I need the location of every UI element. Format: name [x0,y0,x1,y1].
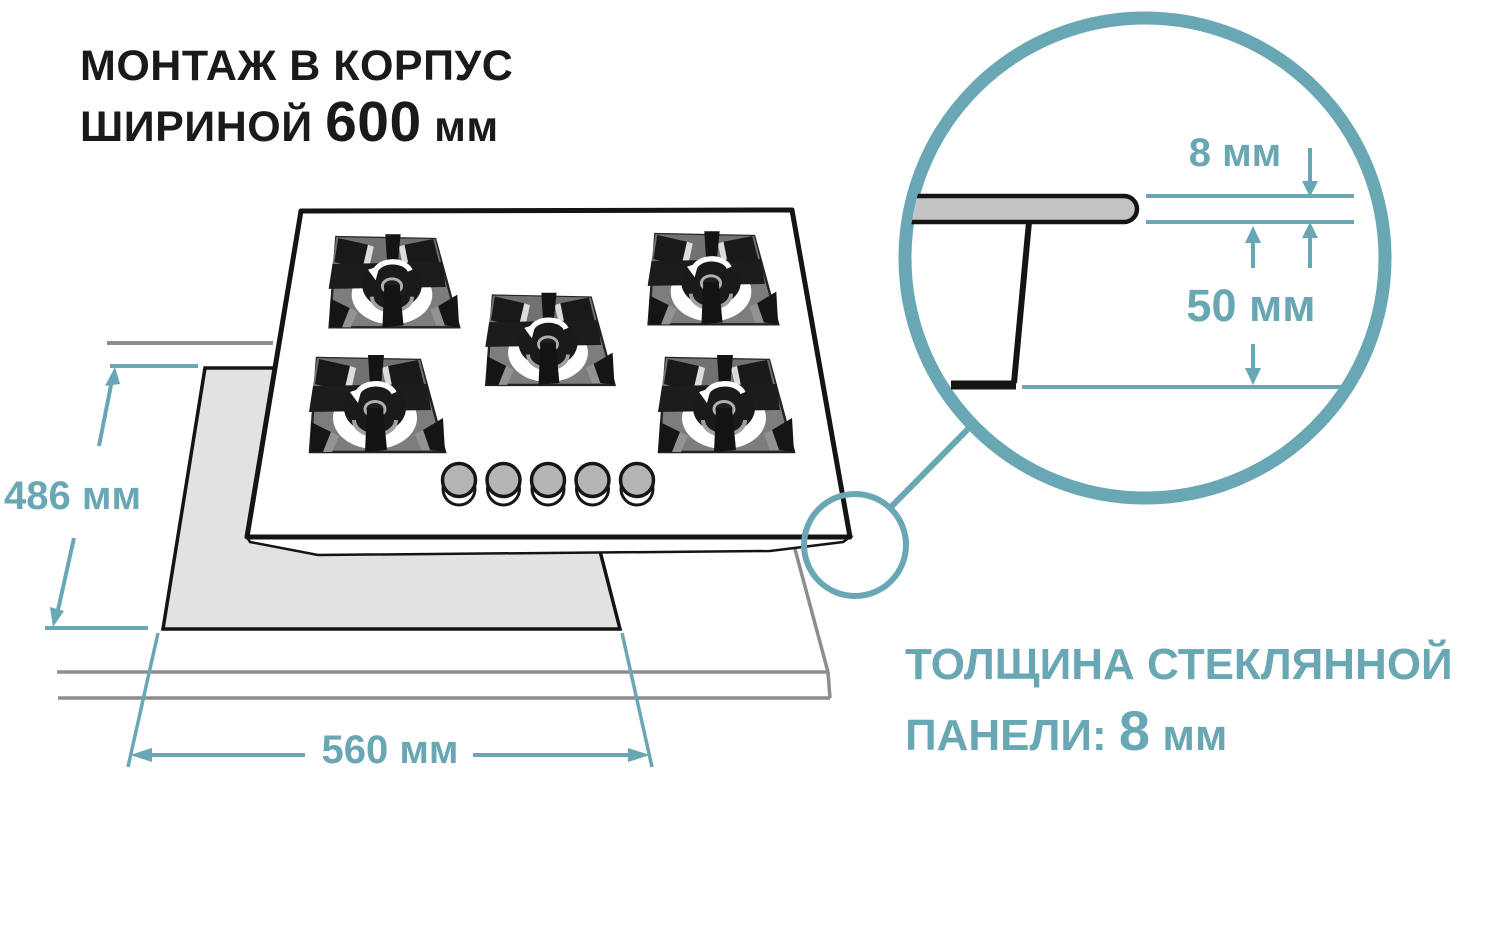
page-title-line1: МОНТАЖ В КОРПУС [80,38,513,94]
dim-486-arrow-up [105,367,120,386]
detail-lens [878,18,1385,498]
caption-line2: ПАНЕЛИ: 8 мм [905,698,1453,769]
dim-label-486: 486 мм [4,474,141,519]
detail-lens-circle [905,18,1385,498]
dim-486-lower-line [58,538,74,610]
knob-3 [532,464,565,506]
dim-label-8mm: 8 мм [1183,131,1287,176]
page-title: МОНТАЖ В КОРПУС ШИРИНОЙ 600 мм [80,38,513,155]
countertop-right-edge [792,538,828,672]
installation-diagram-page: МОНТАЖ В КОРПУС ШИРИНОЙ 600 мм 486 мм 56… [0,0,1500,929]
dim-label-50mm: 50 мм [1184,280,1318,332]
dim-486-upper-line [99,380,112,446]
callout-connector-line [890,425,972,508]
glass-cross-section [878,196,1137,222]
knob-2 [487,464,520,506]
knob-1 [443,464,476,506]
hob [247,210,850,555]
glass-thickness-caption: ТОЛЩИНА СТЕКЛЯННОЙ ПАНЕЛИ: 8 мм [905,632,1453,769]
dim-560-right-extension [622,633,652,767]
knob-4 [576,464,609,506]
dim-label-560: 560 мм [290,728,490,773]
knob-5 [621,464,654,506]
caption-line1: ТОЛЩИНА СТЕКЛЯННОЙ [905,632,1453,698]
page-title-line2: ШИРИНОЙ 600 мм [80,94,513,155]
countertop-right-corner-edge [828,672,830,698]
hob-body-tray [247,537,850,555]
dim-486-arrow-down [50,607,64,627]
dim-560-left-extension [128,633,158,767]
